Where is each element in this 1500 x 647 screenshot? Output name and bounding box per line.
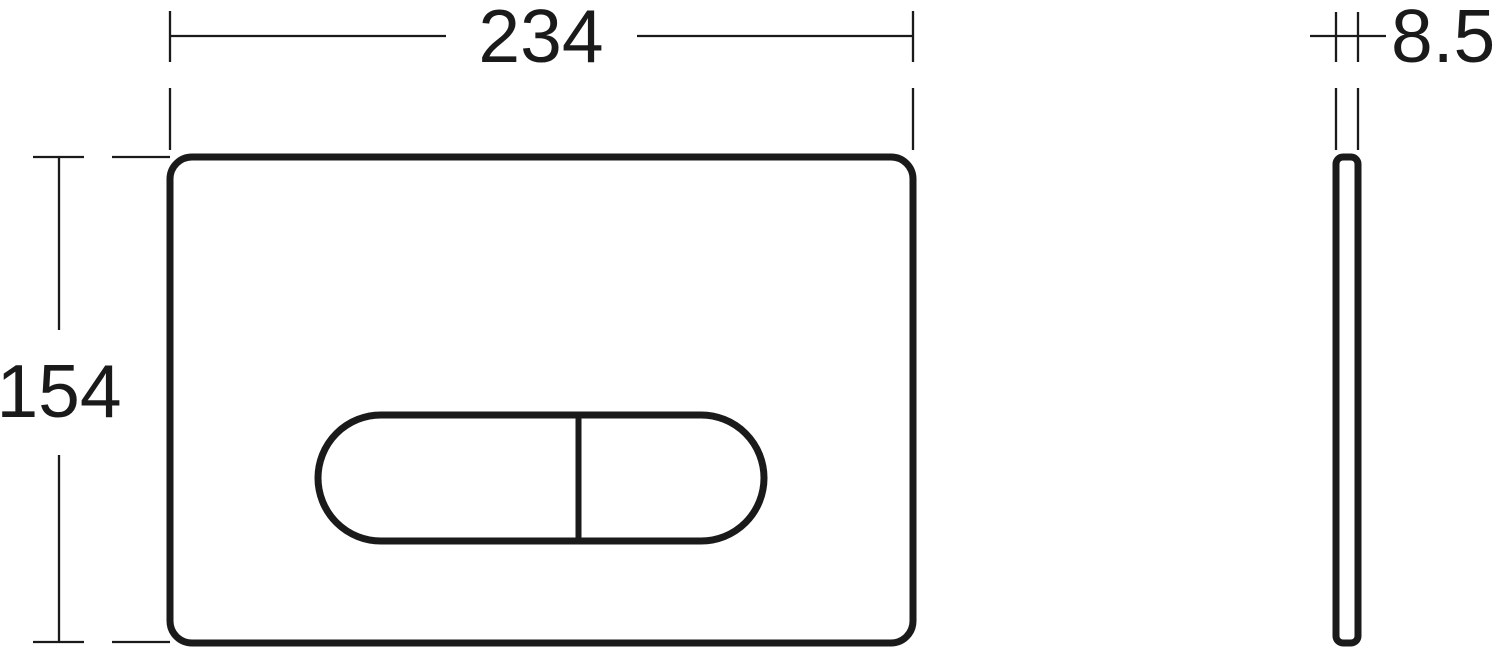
height-dimension-label: 154 bbox=[0, 349, 122, 433]
front-view bbox=[170, 157, 913, 643]
depth-dimension: 8.5 bbox=[1310, 0, 1495, 150]
height-dimension: 154 bbox=[0, 157, 170, 642]
plate-outline bbox=[170, 157, 913, 643]
side-view bbox=[1336, 157, 1358, 643]
width-dimension-label: 234 bbox=[478, 0, 603, 78]
width-dimension: 234 bbox=[170, 0, 913, 150]
depth-dimension-label: 8.5 bbox=[1391, 0, 1495, 78]
flush-button-outline bbox=[318, 415, 764, 541]
dimension-drawing-svg: 234 154 8.5 bbox=[0, 0, 1500, 647]
technical-drawing: 234 154 8.5 bbox=[0, 0, 1500, 647]
depth-dimension-lines bbox=[1310, 12, 1386, 150]
side-profile-outline bbox=[1336, 157, 1358, 643]
